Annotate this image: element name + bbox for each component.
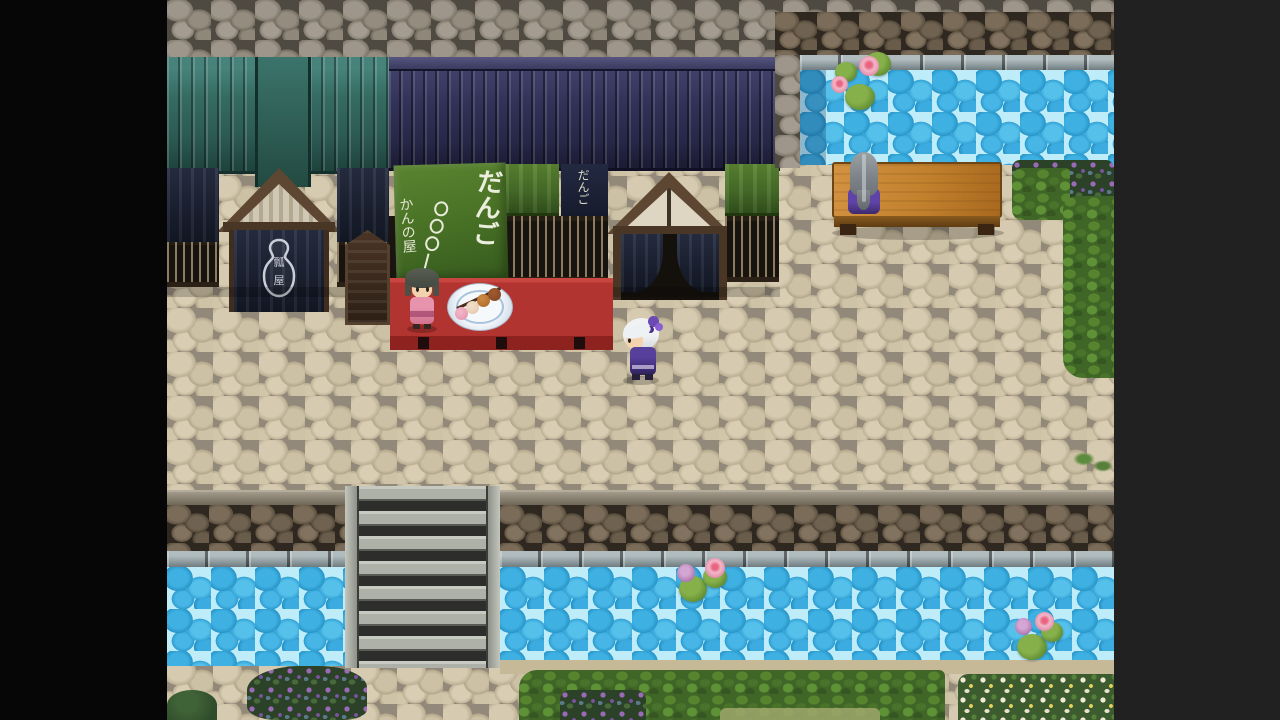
- lotus-flower-purple: [1015, 618, 1032, 635]
- shopkeeper-foot: [413, 324, 420, 329]
- top-stone-wall-dark-section: [775, 12, 1114, 57]
- lower-ledge-left: [167, 551, 345, 567]
- letterbox-right: [1114, 0, 1280, 720]
- player-hair-ornament: [655, 323, 663, 331]
- shopkeeper[interactable]: [403, 268, 441, 332]
- entrance-drape-left: [621, 234, 663, 292]
- bench-villager[interactable]: [843, 150, 887, 220]
- lower-wall-beam-right: [500, 490, 1114, 505]
- villager-hair-highlight: [862, 154, 866, 202]
- lily-pad-cluster-bottom-right: [1013, 610, 1065, 664]
- player-trim: [632, 365, 654, 369]
- lotus-flower: [1035, 612, 1054, 631]
- lotus-flower: [859, 56, 879, 76]
- banner-shop-name: かんの屋: [398, 197, 416, 254]
- shopkeeper-shadow: [407, 325, 437, 333]
- khaki-grass-strip: [720, 708, 880, 720]
- lower-wall-right: [500, 505, 1114, 551]
- grass-blade: [1073, 452, 1095, 466]
- navy-lattice-left: [505, 216, 608, 282]
- banner-main-text: だんご: [470, 167, 502, 247]
- shopkeeper-hair: [405, 268, 439, 288]
- stone-stairs[interactable]: [345, 486, 500, 668]
- lily-pad-cluster-bottom-mid: [677, 558, 729, 608]
- white-flowerbed-bottom-right: [958, 674, 1114, 720]
- green-noren-right: [725, 164, 779, 216]
- teal-roof-ridge: [255, 57, 311, 187]
- dango-circle: [433, 200, 450, 218]
- teal-left-lattice-window: [167, 242, 219, 287]
- emblem-kanji-2: 屋: [274, 274, 285, 287]
- navy-lattice-right: [725, 216, 779, 282]
- lily-pad-cluster-top: [829, 50, 893, 114]
- dango-ball-brown: [488, 288, 501, 301]
- game-window: 瓢 屋 だんご だんご: [0, 0, 1280, 720]
- player-body: [630, 347, 656, 375]
- grass-tuft: [1069, 444, 1114, 478]
- shopkeeper-foot: [424, 324, 431, 329]
- letterbox-left: [0, 0, 167, 720]
- lower-wall-beam-left: [167, 490, 345, 505]
- lily-pad: [845, 84, 875, 110]
- lotus-flower: [831, 76, 848, 93]
- dango-circle: [428, 217, 445, 235]
- player-foot: [632, 374, 640, 380]
- entrance-noren-curtain: 瓢 屋: [229, 230, 329, 312]
- lotus-flower-purple: [677, 564, 695, 582]
- wooden-stand: [345, 230, 390, 325]
- lower-wall-left: [167, 505, 345, 551]
- teal-left-curtain-panel: [167, 168, 219, 242]
- lower-canal-left: [167, 567, 345, 666]
- hedge-column: [1063, 196, 1114, 378]
- shop-green-banner: だんご かんの屋: [393, 163, 508, 284]
- canal-corner-wall: [775, 55, 800, 168]
- dango-stick: [424, 253, 430, 269]
- table-leg-slot: [418, 337, 429, 349]
- bench-leg: [840, 224, 856, 235]
- stair-rail-left: [345, 486, 359, 668]
- table-leg-slot: [574, 337, 585, 349]
- shopkeeper-obi: [410, 311, 434, 317]
- dango-circle: [424, 235, 441, 253]
- table-leg-slot: [496, 337, 507, 349]
- small-banner-text: だんご: [577, 169, 589, 205]
- grass-blade: [1093, 460, 1113, 472]
- purple-flower-patch: [560, 690, 646, 720]
- navy-roof: [389, 57, 780, 171]
- hedge-arm: [1012, 168, 1070, 220]
- small-dango-banner: だんご: [561, 164, 608, 216]
- player-character[interactable]: [617, 316, 665, 384]
- small-bush-corner: [167, 690, 217, 720]
- game-viewport[interactable]: 瓢 屋 だんご だんご: [167, 0, 1114, 720]
- shopkeeper-eye: [426, 287, 429, 292]
- stair-steps: [359, 486, 486, 668]
- green-noren-left: [505, 164, 559, 216]
- lotus-flower: [705, 558, 725, 578]
- player-shadow: [623, 376, 659, 385]
- purple-bush-bottom-left: [247, 666, 367, 720]
- navy-roof-eave-pipe: [389, 57, 780, 71]
- lower-ledge-right: [500, 551, 1114, 567]
- entrance-drape-right: [677, 234, 719, 292]
- bench-leg: [978, 224, 994, 235]
- player-foot: [645, 374, 653, 380]
- banner-dango-skewer: [419, 200, 450, 271]
- shopkeeper-eye: [416, 287, 419, 292]
- water-edge-shadow: [800, 70, 826, 165]
- dango-plate[interactable]: [447, 281, 511, 331]
- emblem-kanji-1: 瓢: [274, 256, 285, 269]
- stair-rail-right: [486, 486, 500, 668]
- teal-right-curtain-panel: [337, 168, 389, 242]
